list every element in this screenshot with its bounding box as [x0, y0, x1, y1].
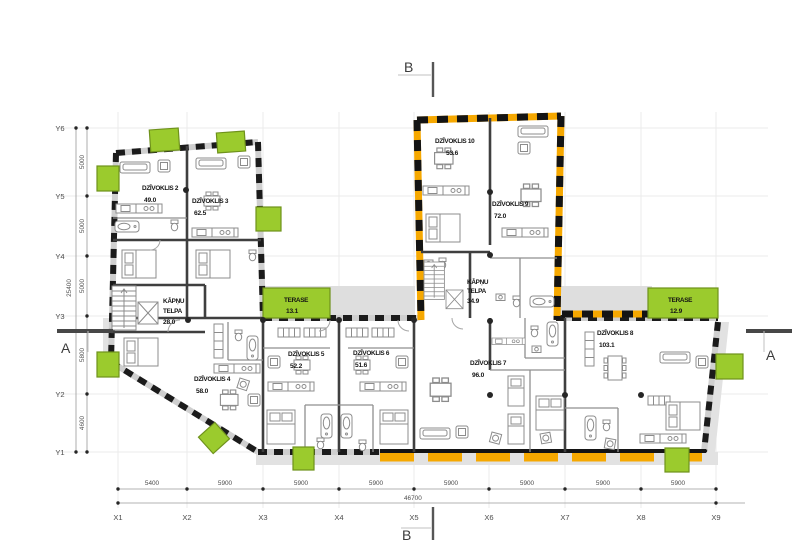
axis-label-x8: X8	[636, 513, 645, 522]
balcony	[216, 131, 245, 153]
dimension-value: 5900	[218, 480, 233, 487]
apartment-label: DZĪVOKLIS 6	[353, 349, 390, 357]
axis-label-y2: Y2	[55, 390, 64, 399]
balcony	[149, 128, 179, 152]
apartment-area: 103.1	[599, 342, 615, 349]
axis-label-x7: X7	[560, 513, 569, 522]
balcony	[716, 354, 743, 379]
dimension-value: 5800	[79, 347, 86, 362]
balcony	[665, 448, 689, 472]
dimension-value: 5000	[79, 154, 86, 169]
axis-label-x9: X9	[711, 513, 720, 522]
dimension-lines-left: 5000 5000 5000 5800 4600 25400	[66, 126, 89, 453]
apartment-area: 53.6	[446, 150, 459, 157]
dimension-value: 5000	[79, 218, 86, 233]
axis-label-y6: Y6	[55, 124, 64, 133]
apartment-area: 72.0	[494, 213, 507, 220]
dimension-value: 5900	[671, 480, 686, 487]
section-marker-b-top: B	[404, 59, 413, 75]
floor-plan-canvas: DZĪVOKLIS 2 49.0 DZĪVOKLIS 3 62.5 DZĪVOK…	[0, 0, 800, 550]
apartment-area: 96.0	[472, 372, 485, 379]
terrace-area-value: 13.1	[286, 308, 299, 315]
axis-label-y3: Y3	[55, 312, 64, 321]
axis-label-y1: Y1	[55, 448, 64, 457]
apartment-area: 52.2	[290, 363, 303, 370]
dimension-value: 5900	[369, 480, 384, 487]
apartment-area: 49.0	[144, 197, 157, 204]
section-marker-a-left: A	[61, 340, 71, 356]
dimension-value: 5900	[596, 480, 611, 487]
dimension-value: 5000	[79, 278, 86, 293]
apartment-label: DZĪVOKLIS 7	[470, 359, 507, 367]
stairwell-label: TELPA	[467, 288, 487, 295]
axis-label-x2: X2	[182, 513, 191, 522]
apartment-label: DZĪVOKLIS 10	[435, 137, 475, 145]
apartment-label: DZĪVOKLIS 3	[192, 197, 229, 205]
axis-label-x5: X5	[409, 513, 418, 522]
axis-label-y5: Y5	[55, 192, 64, 201]
stairwell-label: KĀPŅU	[467, 278, 489, 286]
dimension-lines-bottom: 5400 5900 5900 5900 5900 5900 5900 5900 …	[116, 480, 745, 505]
section-marker-b-bottom: B	[402, 527, 411, 543]
apartment-label: DZĪVOKLIS 9	[492, 200, 529, 208]
dimension-value: 5400	[145, 480, 160, 487]
terrace-label: TERASE	[284, 297, 309, 304]
balcony	[97, 166, 119, 191]
dimension-total: 25400	[66, 279, 73, 297]
balcony	[97, 352, 119, 377]
dimension-value: 5900	[444, 480, 459, 487]
apartment-label: DZĪVOKLIS 2	[142, 184, 179, 192]
axis-label-x3: X3	[258, 513, 267, 522]
apartment-area: 62.5	[194, 210, 207, 217]
balcony	[256, 207, 281, 231]
floor-plan-drawing: DZĪVOKLIS 2 49.0 DZĪVOKLIS 3 62.5 DZĪVOK…	[0, 0, 800, 550]
stairwell-label: KĀPŅU	[163, 297, 185, 305]
dimension-total: 46700	[404, 495, 422, 502]
apartment-area: 58.0	[196, 388, 209, 395]
apartment-area: 51.6	[355, 362, 368, 369]
axis-label-x4: X4	[334, 513, 343, 522]
axis-label-x1: X1	[113, 513, 122, 522]
terrace-area-value: 12.9	[670, 308, 683, 315]
dimension-value: 5900	[294, 480, 309, 487]
section-marker-a-right: A	[766, 347, 776, 363]
apartment-label: DZĪVOKLIS 5	[288, 350, 325, 358]
stairwell-area: 28.0	[163, 319, 176, 326]
balcony	[293, 447, 314, 470]
axis-label-y4: Y4	[55, 252, 64, 261]
stairwell-area: 34.9	[467, 298, 480, 305]
apartment-label: DZĪVOKLIS 4	[194, 375, 231, 383]
stairwell-label: TELPA	[163, 308, 183, 315]
axis-label-x6: X6	[484, 513, 493, 522]
apartment-label: DZĪVOKLIS 8	[597, 329, 634, 337]
dimension-value: 4600	[79, 415, 86, 430]
dimension-value: 5900	[520, 480, 535, 487]
terrace-label: TERASE	[668, 297, 693, 304]
